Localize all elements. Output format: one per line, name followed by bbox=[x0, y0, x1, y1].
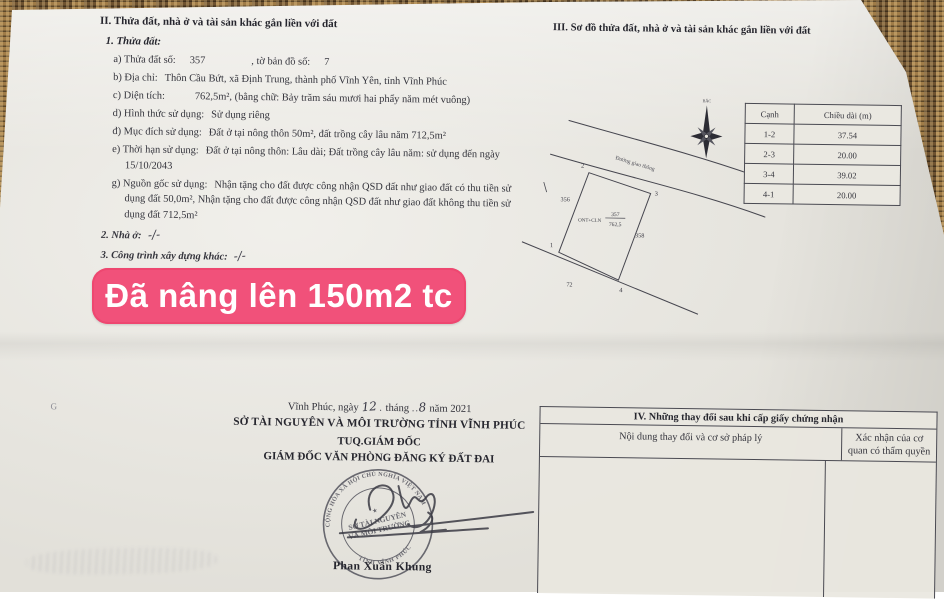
section-iv-table: IV. Những thay đổi sau khi cấp giấy chứn… bbox=[537, 406, 938, 599]
stray-pen-mark bbox=[544, 182, 547, 192]
col-header-length: Chiều dài (m) bbox=[794, 104, 901, 125]
vertex-2-label: 2 bbox=[581, 163, 584, 170]
faint-pen-mark: G bbox=[51, 401, 58, 411]
land-use-code-label: ONT+CLN bbox=[578, 219, 602, 224]
field-use-origin: g) Nguồn gốc sử dụng:Nhận tặng cho đất đ… bbox=[111, 176, 526, 228]
signer-name: Phan Xuân Khung bbox=[272, 558, 492, 574]
table-header-row: Cạnh Chiều dài (m) bbox=[745, 103, 901, 125]
col-header-edge: Cạnh bbox=[745, 103, 794, 124]
table-row: 3-4 39.02 bbox=[744, 163, 900, 185]
section-iv-body bbox=[538, 457, 936, 599]
neighbor-right-label: 358 bbox=[635, 232, 644, 239]
handwritten-month: 8 bbox=[419, 400, 428, 415]
item-house: 2. Nhà ở:-/- bbox=[101, 227, 525, 249]
ink-bleed-smudge bbox=[26, 546, 217, 576]
handwritten-signature bbox=[328, 471, 544, 559]
confirmation-cell-empty bbox=[824, 461, 936, 599]
vertex-3-label: 3 bbox=[655, 191, 658, 198]
compass-rose-icon: BẮC bbox=[690, 97, 723, 158]
section-iii-title: III. Sơ đồ thửa đất, nhà ở và tài sản kh… bbox=[553, 22, 943, 38]
overlay-badge-text: Đã nâng lên 150m2 tc bbox=[105, 277, 452, 315]
vertex-4-label: 4 bbox=[619, 287, 623, 294]
neighbor-left-label: 356 bbox=[560, 196, 569, 203]
bottom-boundary-line bbox=[521, 242, 699, 314]
table-row: 4-1 20.00 bbox=[744, 183, 900, 205]
overlay-badge: Đã nâng lên 150m2 tc bbox=[92, 268, 466, 324]
neighbor-bottom-label: 72 bbox=[566, 281, 572, 288]
parcel-fields: a) Thửa đất số:357, tờ bản đồ số:7 b) Đị… bbox=[111, 52, 527, 228]
photo-of-land-certificate: { "overlay_badge": { "text": "Đã nâng lê… bbox=[0, 0, 944, 592]
field-use-term: e) Thời hạn sử dụng:Đất ở tại nông thôn:… bbox=[112, 142, 526, 179]
compass-north-label: BẮC bbox=[703, 97, 712, 103]
table-row: 2-3 20.00 bbox=[745, 143, 901, 165]
handwritten-day: 12 bbox=[361, 399, 377, 414]
parcel-polygon bbox=[558, 172, 650, 280]
item-construction: 3. Công trình xây dựng khác:-/- bbox=[101, 246, 525, 268]
section-ii-title: II. Thửa đất, nhà ở và tài sản khác gắn … bbox=[100, 14, 528, 35]
vertex-1-label: 1 bbox=[550, 242, 553, 249]
table-row: 1-2 37.54 bbox=[745, 123, 901, 145]
date-line: Vĩnh Phúc, ngày 12 . tháng ..8 năm 2021 bbox=[200, 397, 560, 416]
edge-length-table: Cạnh Chiều dài (m) 1-2 37.54 2-3 20.00 3… bbox=[743, 103, 901, 206]
parcel-number-label: 357 bbox=[611, 212, 620, 218]
col-header-confirmation: Xác nhận của cơ quan có thẩm quyền bbox=[842, 428, 936, 461]
parcel-heading: 1. Thửa đất: bbox=[106, 33, 528, 54]
road-label: Đường giao thông bbox=[615, 155, 656, 173]
parcel-area-label: 762,5 bbox=[609, 222, 622, 228]
changes-cell-empty bbox=[538, 457, 826, 597]
